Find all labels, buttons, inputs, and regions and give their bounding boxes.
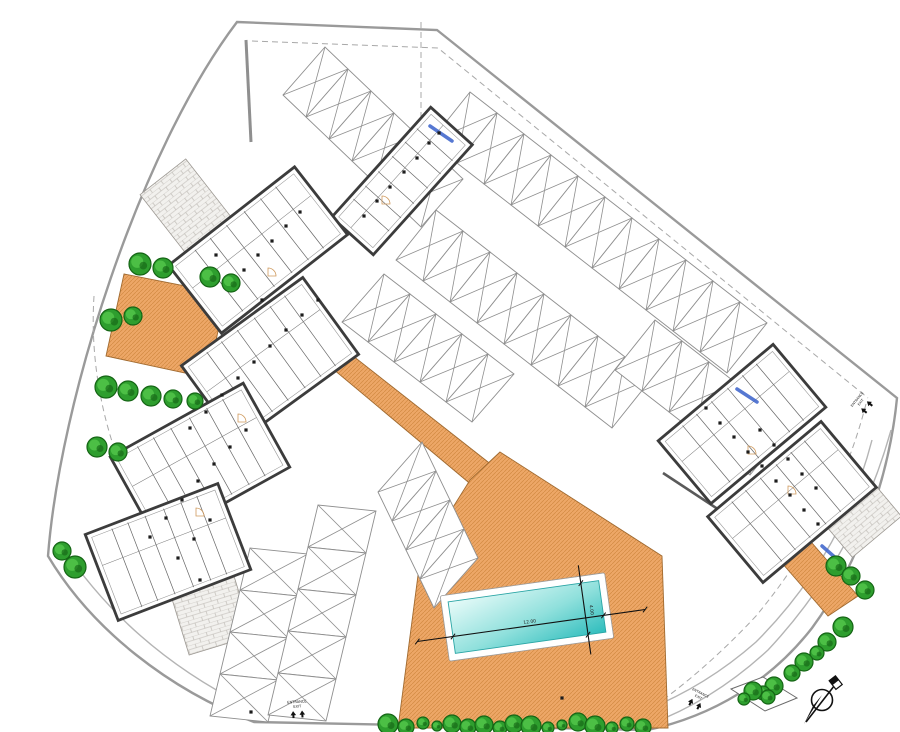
tree: [378, 714, 398, 732]
wall-fixture: [800, 472, 803, 475]
wall-fixture: [362, 214, 365, 217]
wall-fixture: [284, 328, 287, 331]
wall-fixture: [732, 435, 735, 438]
parking-stall: [298, 547, 366, 595]
tree: [118, 381, 138, 401]
wall-fixture: [298, 210, 301, 213]
wall-fixture: [236, 376, 239, 379]
tree: [856, 581, 874, 599]
north-arrow-icon: [804, 676, 842, 724]
tree: [620, 717, 634, 731]
tree: [64, 556, 86, 578]
tree: [100, 309, 122, 331]
wall-fixture: [760, 464, 763, 467]
tree: [53, 542, 71, 560]
tree: [542, 722, 554, 732]
tree: [635, 719, 651, 732]
tree: [606, 722, 618, 732]
wall-fixture: [270, 239, 273, 242]
wall-fixture: [788, 493, 791, 496]
wall-fixture: [188, 426, 191, 429]
wall-fixture: [786, 457, 789, 460]
wall-fixture: [560, 696, 563, 699]
tree: [833, 617, 853, 637]
wall-fixture: [316, 298, 319, 301]
tree: [87, 437, 107, 457]
wall-fixture: [375, 199, 378, 202]
parking-stall: [288, 589, 356, 637]
wall-fixture: [814, 486, 817, 489]
wall-fixture: [196, 479, 199, 482]
wall-fixture: [180, 498, 183, 501]
tree: [222, 274, 240, 292]
tree: [761, 690, 775, 704]
parking-stall: [278, 631, 346, 679]
wall-fixture: [208, 518, 211, 521]
wall-fixture: [198, 578, 201, 581]
tree: [141, 386, 161, 406]
tree: [124, 307, 142, 325]
tree: [200, 267, 220, 287]
wall-fixture: [427, 141, 430, 144]
tree: [187, 393, 203, 409]
wall-fixture: [260, 298, 263, 301]
tree: [95, 376, 117, 398]
tree: [738, 693, 750, 705]
wall-fixture: [774, 479, 777, 482]
wall-fixture: [772, 443, 775, 446]
wall-fixture: [300, 313, 303, 316]
tree: [164, 390, 182, 408]
wall-fixture: [192, 537, 195, 540]
tree: [569, 713, 587, 731]
site-plan: 12.004.00ENTRANCEEXITENTRANCEEXITENTRANC…: [0, 0, 900, 732]
wall-fixture: [388, 185, 391, 188]
wall-fixture: [718, 421, 721, 424]
tree: [443, 715, 461, 732]
wall-fixture: [249, 710, 252, 713]
parking-stall: [308, 505, 376, 553]
wall-fixture: [204, 410, 207, 413]
wall-fixture: [437, 131, 440, 134]
tree: [417, 717, 429, 729]
tree: [784, 665, 800, 681]
wall-fixture: [164, 516, 167, 519]
tree: [521, 716, 541, 732]
wall-fixture: [758, 428, 761, 431]
tree: [129, 253, 151, 275]
tree: [505, 715, 523, 732]
entrance-label-bottom-text: EXIT: [293, 704, 302, 709]
wall-fixture: [402, 170, 405, 173]
wall-fixture: [252, 360, 255, 363]
tree: [557, 720, 567, 730]
tree: [585, 716, 605, 732]
wall-fixture: [214, 253, 217, 256]
site-plan-canvas: 12.004.00ENTRANCEEXITENTRANCEEXITENTRANC…: [0, 0, 900, 732]
wall-fixture: [816, 522, 819, 525]
tree: [460, 719, 476, 732]
wall-fixture: [268, 344, 271, 347]
wall-fixture: [176, 556, 179, 559]
wall-fixture: [746, 450, 749, 453]
wall-fixture: [284, 224, 287, 227]
wall-fixture: [802, 508, 805, 511]
wall-fixture: [148, 535, 151, 538]
wall-fixture: [220, 393, 223, 396]
tree: [109, 443, 127, 461]
wall-fixture: [704, 406, 707, 409]
tree: [842, 567, 860, 585]
tree: [398, 719, 414, 732]
tree: [475, 716, 493, 732]
wall-fixture: [244, 428, 247, 431]
wall-fixture: [212, 462, 215, 465]
wall-fixture: [228, 445, 231, 448]
wall-fixture: [415, 156, 418, 159]
tree: [153, 258, 173, 278]
wall-fixture: [256, 253, 259, 256]
tree: [432, 721, 442, 731]
wall-fixture: [242, 268, 245, 271]
